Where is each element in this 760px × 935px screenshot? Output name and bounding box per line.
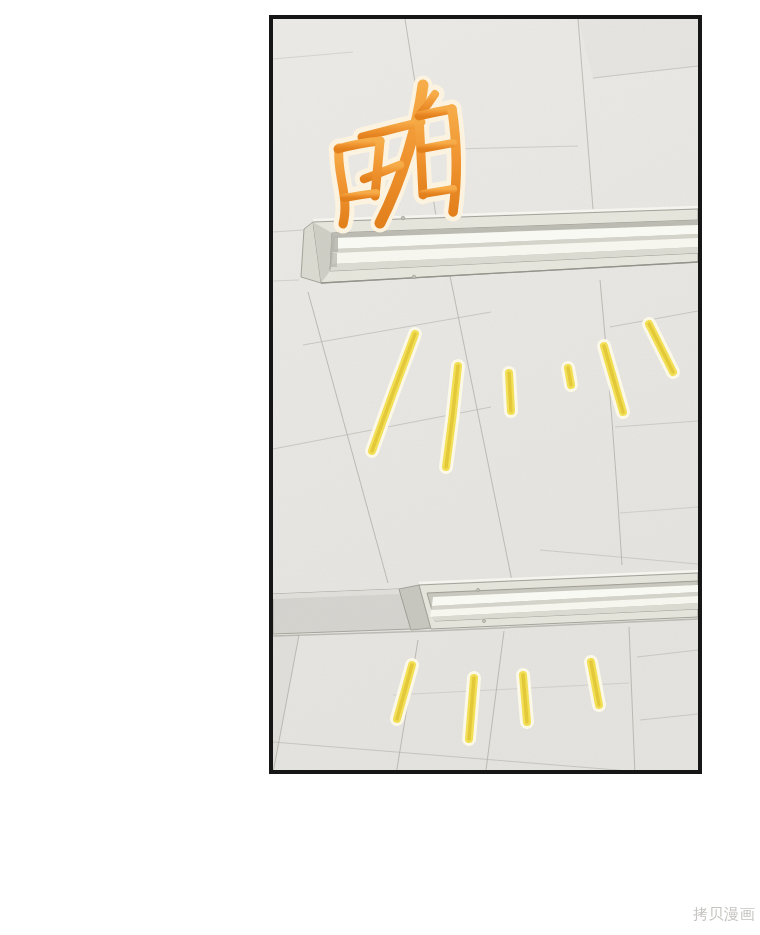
comic-panel: 啪	[269, 15, 702, 774]
comic-page: 啪	[0, 0, 760, 935]
paper-grain	[273, 19, 698, 770]
watermark: 拷贝漫画	[693, 905, 755, 923]
ceiling-art	[273, 19, 698, 770]
